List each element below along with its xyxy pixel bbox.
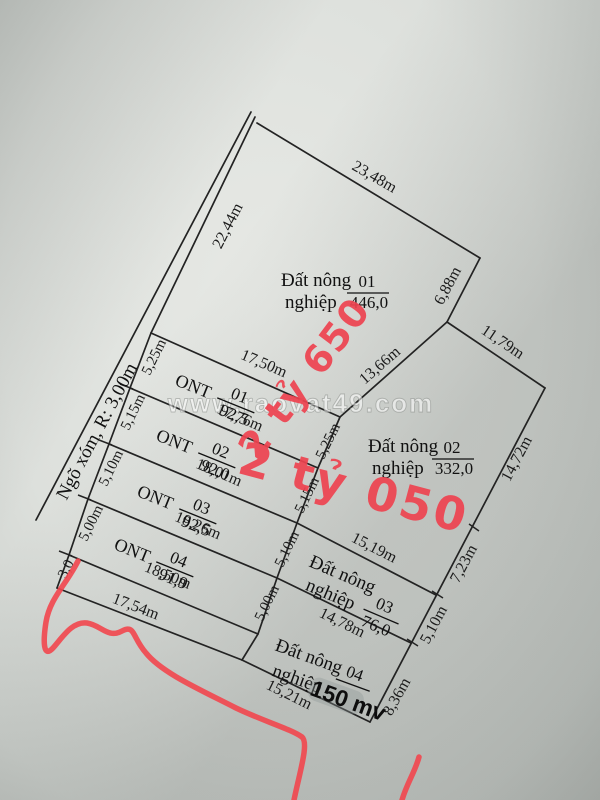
cadastral-diagram: www.raovat49.com Ngõ xóm, R: 3,00m 22,44… (0, 0, 600, 800)
land-survey-photo: www.raovat49.com Ngõ xóm, R: 3,00m 22,44… (0, 0, 600, 800)
plot-nn01-name-line1: Đất nông (281, 270, 352, 291)
plot-nn02-area: 332,0 (435, 459, 473, 478)
plot-nn01-number: 01 (359, 272, 376, 291)
plot-nn02-number: 02 (444, 438, 461, 457)
plot-nn02-name-line1: Đất nông (368, 436, 439, 457)
